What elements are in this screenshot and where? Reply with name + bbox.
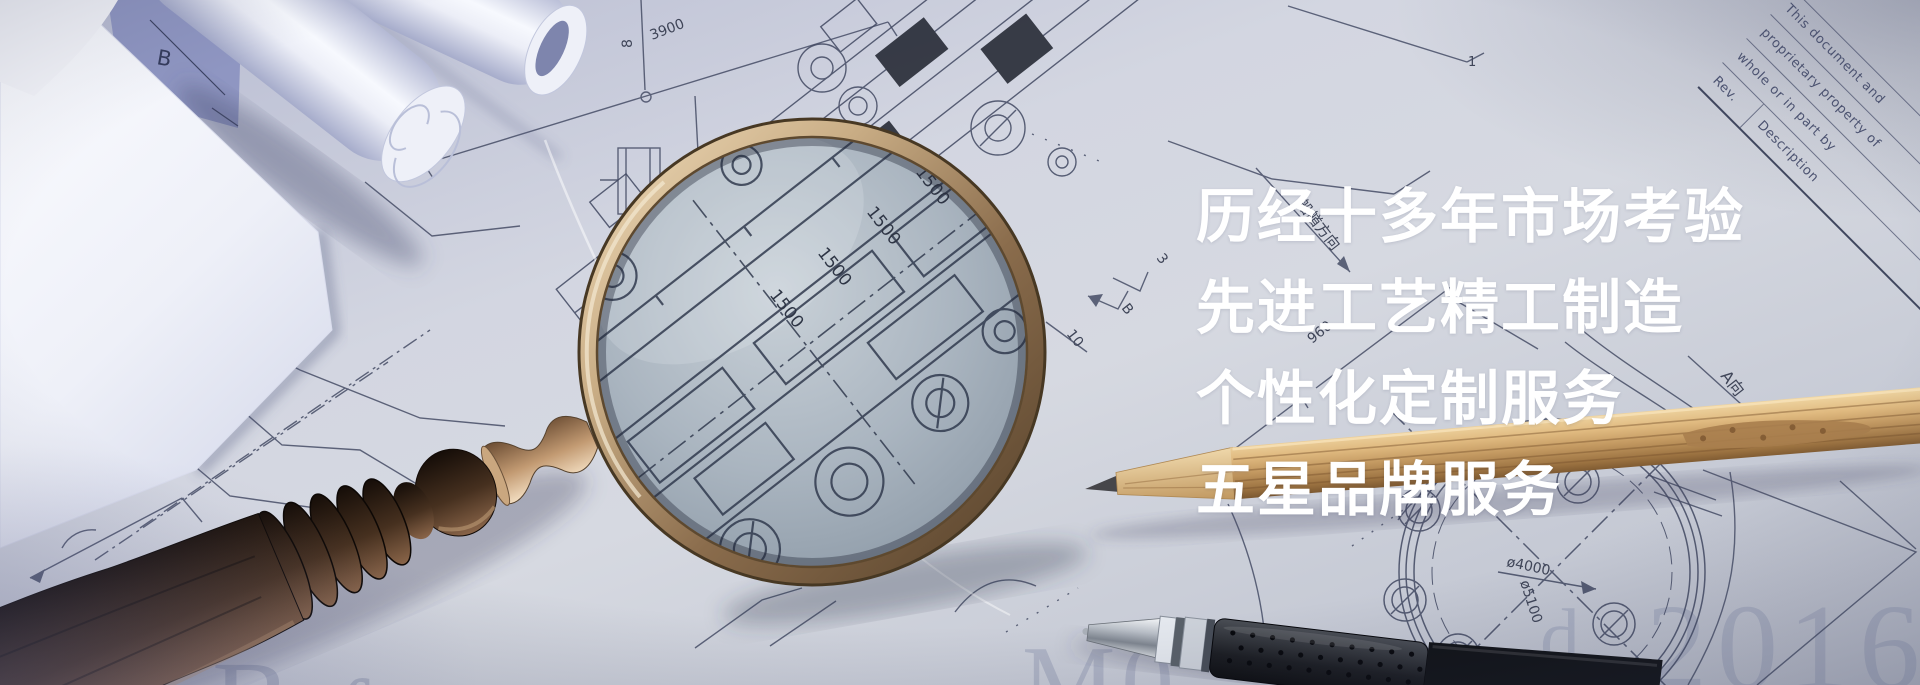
hero-banner: B p f M0 d 2016—: [0, 0, 1920, 685]
headline-line-2: 先进工艺精工制造: [1196, 263, 1745, 354]
headline-line-3: 个性化定制服务: [1196, 354, 1745, 445]
headline-line-4: 五星品牌服务: [1196, 445, 1745, 536]
headline-line-1: 历经十多年市场考验: [1196, 172, 1745, 263]
headline: 历经十多年市场考验 先进工艺精工制造 个性化定制服务 五星品牌服务: [1196, 172, 1745, 536]
